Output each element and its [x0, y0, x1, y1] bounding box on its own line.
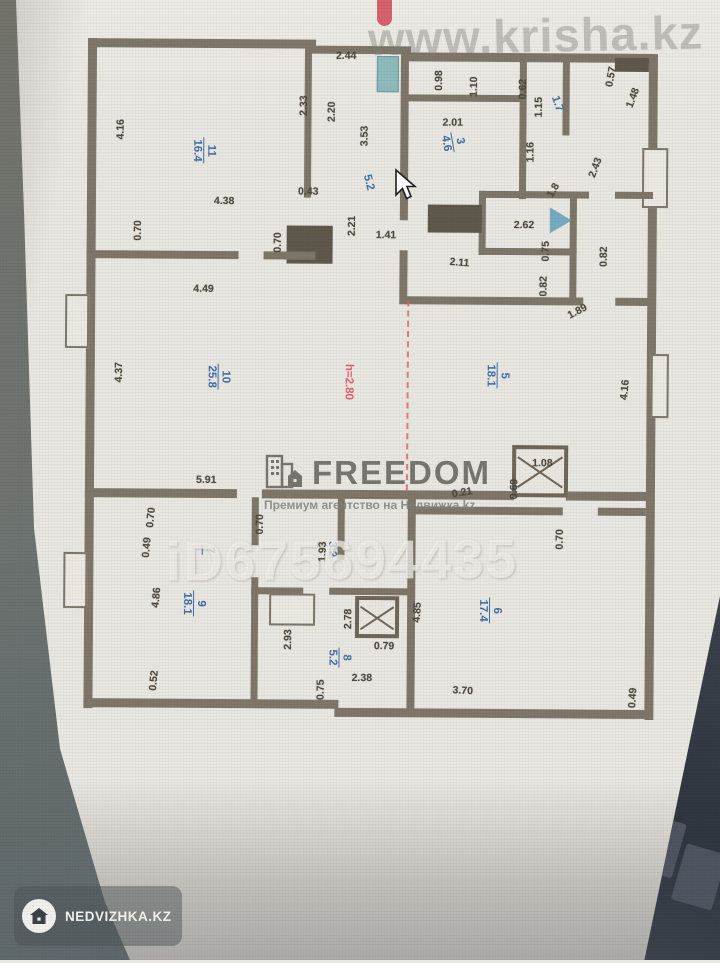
room-label-3: 3 4.6: [437, 130, 467, 154]
dimension-label: 2.62: [514, 219, 535, 231]
freedom-watermark: FREEDOM Премиум агентство на Недвижка.kz: [264, 450, 474, 512]
room-label-8: 8 5.2: [325, 647, 353, 667]
dimension-label: 2.38: [352, 672, 373, 684]
radiator-block: [428, 204, 482, 232]
freedom-logo-text: FREEDOM: [312, 454, 491, 492]
door-swing-symbol: [550, 207, 572, 233]
dimension-label: 0.49: [140, 537, 154, 558]
wall: [598, 508, 646, 516]
building-house-icon: [264, 450, 304, 495]
dimension-label: 4.86: [149, 587, 163, 608]
room-area: 25.8: [204, 363, 217, 389]
wall: [85, 488, 237, 498]
dimension-label: 2.01: [442, 117, 463, 129]
room-number: 9: [193, 590, 207, 616]
house-icon: [22, 899, 56, 933]
dimension-label: 0.70: [554, 529, 566, 550]
window: [642, 148, 668, 208]
wall: [405, 296, 583, 305]
listing-id-watermark: iD675694435: [166, 526, 519, 593]
freedom-tagline: Премиум агентство на Недвижка.kz: [264, 498, 474, 512]
dimension-label: 4.38: [214, 195, 235, 207]
wall: [304, 46, 312, 198]
window: [63, 552, 87, 608]
room-label-corridor: 5.2: [359, 171, 377, 194]
room-number: 8: [338, 648, 352, 668]
dimension-label: 1.08: [532, 457, 553, 469]
wall: [562, 59, 570, 135]
dimension-label: 0.52: [147, 670, 161, 691]
sink-fixture: [269, 593, 315, 625]
dimension-label: 0.75: [315, 679, 327, 700]
wall: [407, 94, 525, 102]
wall: [250, 577, 258, 707]
wall: [87, 250, 239, 259]
dimension-label: 1.41: [376, 229, 397, 241]
dimension-label: 2.20: [326, 102, 338, 123]
wall: [334, 708, 652, 719]
wall: [83, 698, 338, 709]
dimension-label: 2.93: [282, 629, 294, 650]
room-label-6: 6 17.4: [475, 597, 503, 624]
wall: [479, 248, 577, 256]
wall: [566, 491, 650, 501]
dimension-label: 0.75: [540, 241, 552, 262]
vent-shaft: [355, 596, 399, 638]
window: [650, 354, 668, 418]
badge-label: NEDVIZHKA.KZ: [65, 909, 172, 924]
room-number: 11: [203, 137, 217, 163]
nedvizhka-badge: NEDVIZHKA.KZ: [14, 886, 182, 946]
room-label-5: 5 18.1: [483, 362, 511, 389]
dimension-label: 4.49: [193, 283, 214, 295]
dimension-label: 2.43: [586, 156, 604, 179]
dimension-label: 1.16: [524, 142, 536, 163]
dimension-label: 0.70: [132, 220, 144, 241]
room-area: 18.1: [180, 590, 193, 616]
room-area: 18.1: [483, 362, 496, 388]
room-number: 5: [496, 362, 510, 388]
room-area: 16.4: [190, 137, 203, 163]
dimension-label: 0.49: [626, 687, 639, 708]
room-number: 6: [489, 597, 503, 623]
dimension-label: 2.78: [342, 609, 354, 630]
dimension-label: 2.11: [449, 256, 470, 269]
dimension-label: 2.33: [298, 95, 310, 116]
dimension-label: 1.15: [533, 97, 545, 118]
dimension-label: 0.82: [538, 276, 550, 297]
window: [65, 294, 89, 348]
krisha-watermark: www.krisha.kz: [367, 4, 703, 66]
dimension-label: 3.70: [452, 684, 473, 697]
dimension-label: 0.70: [272, 232, 284, 253]
dimension-label: 1.48: [624, 86, 642, 109]
ceiling-height-label: h=2.80: [343, 364, 355, 400]
room-label-11: 11 16.4: [190, 137, 218, 164]
wall: [88, 38, 316, 49]
dimension-label: 3.53: [359, 126, 371, 147]
dimension-label: 0.98: [433, 70, 445, 91]
dimension-label: 0.62: [517, 79, 529, 100]
dimension-label: 0.82: [598, 246, 610, 267]
room-label-9: 9 18.1: [180, 590, 208, 617]
mouse-cursor-icon: [393, 168, 419, 207]
dimension-label: 2.21: [346, 216, 358, 237]
dimension-label: 4.85: [411, 602, 424, 623]
room-number: 10: [217, 364, 231, 390]
dimension-label: 4.16: [618, 379, 632, 400]
dimension-label: 5.91: [196, 474, 217, 486]
dimension-label: 0.57: [603, 66, 618, 88]
room-label-10: 10 25.8: [204, 363, 232, 390]
wall: [615, 192, 653, 199]
dimension-label: 0.69: [508, 479, 520, 500]
dimension-label: 2.44: [336, 50, 357, 62]
elevator-shaft: [512, 445, 568, 497]
dimension-label: 1.10: [468, 77, 480, 98]
room-area: 17.4: [475, 597, 488, 623]
dimension-label: 4.37: [113, 362, 125, 383]
dimension-label: 0.70: [144, 507, 158, 528]
dimension-label: 0.43: [298, 186, 319, 198]
wall: [615, 298, 651, 306]
screen-photo: 2.44 2.33 2.20 4.16 0.43 4.38 0.70 0.70 …: [0, 0, 720, 960]
room-area: 5.2: [325, 647, 338, 667]
dimension-label: 4.16: [115, 119, 127, 140]
dimension-label: 0.79: [374, 640, 395, 652]
room-area: 5.2: [359, 171, 377, 194]
